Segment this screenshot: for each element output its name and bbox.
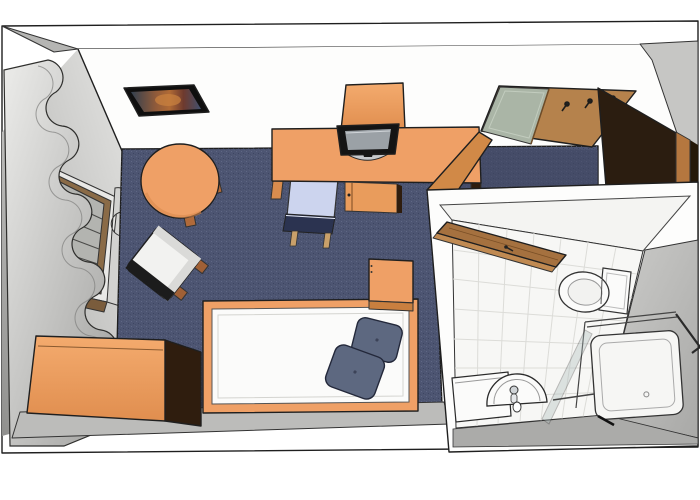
sideboard-side bbox=[165, 340, 201, 426]
soap-dispenser bbox=[513, 402, 521, 412]
nightstand-top bbox=[369, 259, 413, 303]
bathroom bbox=[427, 182, 700, 452]
table-top bbox=[141, 144, 219, 218]
nightstand-knob bbox=[371, 271, 373, 273]
basin-faucet bbox=[510, 386, 518, 394]
floor-plan-render bbox=[0, 0, 700, 500]
nightstand bbox=[369, 259, 413, 311]
nightstand-front bbox=[369, 301, 413, 311]
sideboard-top bbox=[27, 336, 165, 421]
bed bbox=[203, 299, 418, 413]
wall-picture bbox=[124, 85, 209, 116]
cabinet-handle bbox=[348, 194, 351, 197]
desk-wall-shelf bbox=[341, 83, 405, 130]
desk-cabinet bbox=[345, 182, 397, 213]
picture-highlight bbox=[155, 94, 181, 106]
floor-plan-stage bbox=[0, 0, 700, 500]
nightstand-knob bbox=[371, 265, 373, 267]
desk-leg bbox=[271, 181, 283, 199]
desk-cabinet-side bbox=[397, 184, 402, 213]
sideboard bbox=[27, 336, 201, 426]
tv-stand bbox=[362, 150, 374, 157]
faucet-spout bbox=[511, 394, 517, 403]
desk-chair-seat bbox=[287, 177, 338, 219]
